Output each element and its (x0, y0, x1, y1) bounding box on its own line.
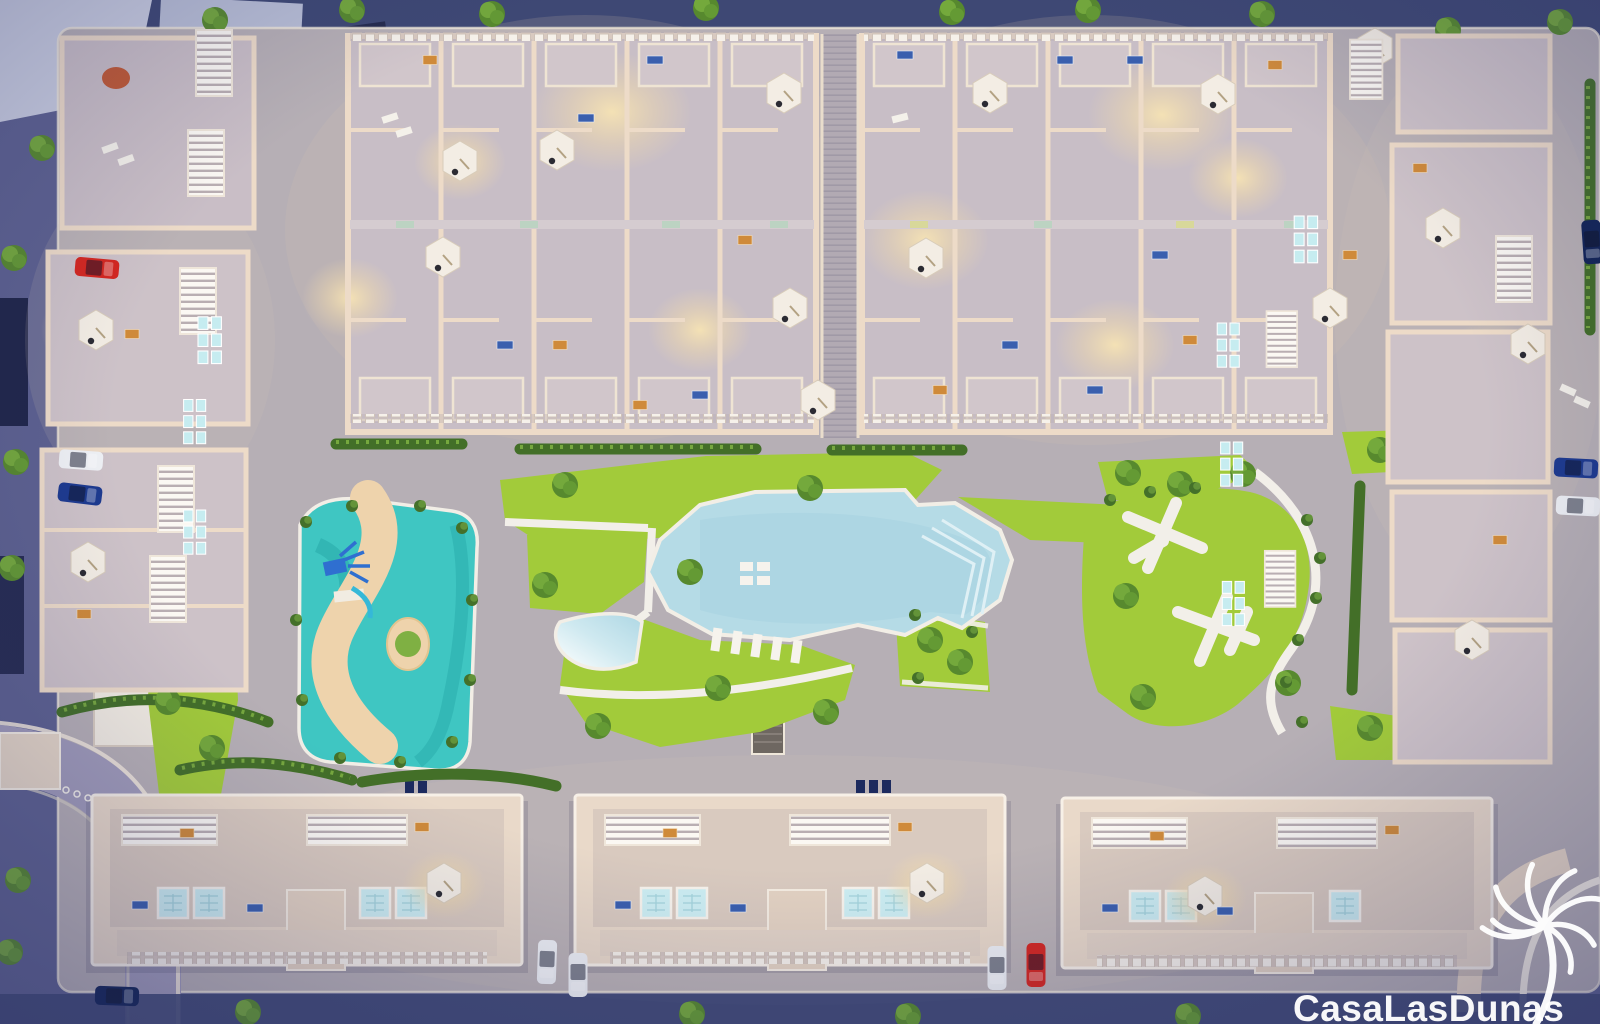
brand-text: CasaLasDunas (1293, 988, 1564, 1024)
dusk-vignette (0, 0, 1600, 1024)
aerial-masterplan-render: CasaLasDunas (0, 0, 1600, 1024)
masterplan-svg: CasaLasDunas (0, 0, 1600, 1024)
